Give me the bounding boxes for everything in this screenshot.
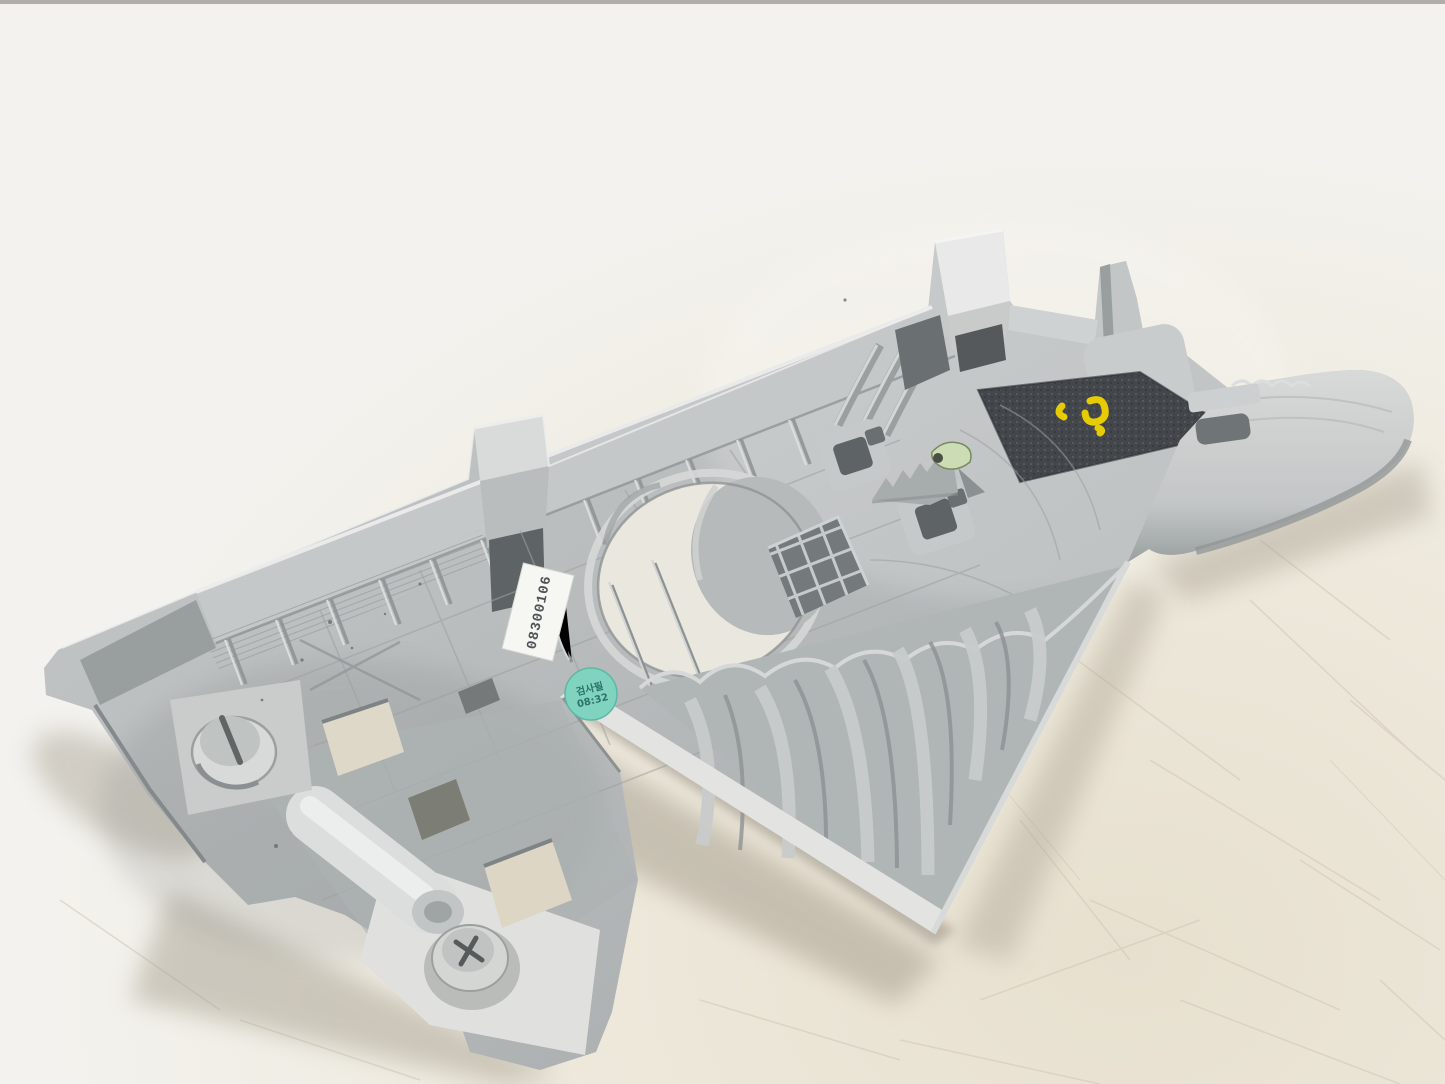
photo-canvas: 08300106 검사필 08:32 <box>0 0 1445 1084</box>
green-inspection-sticker: 검사필 08:32 <box>565 668 617 720</box>
screw-fastener-1 <box>192 716 276 787</box>
photo-of-trim-panel: 08300106 검사필 08:32 <box>0 0 1445 1084</box>
photo-top-edge-strip <box>0 0 1445 4</box>
